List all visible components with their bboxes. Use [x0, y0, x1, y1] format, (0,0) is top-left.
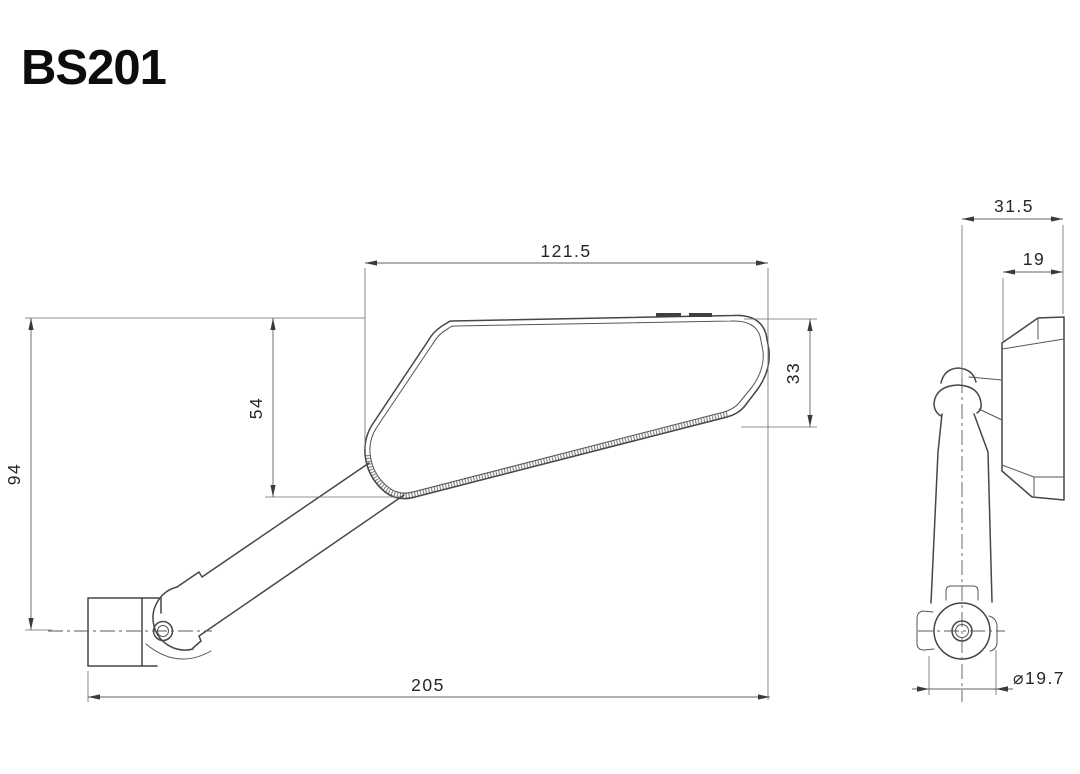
dim-label-glass-height: 54 [246, 397, 266, 419]
arm-lower-edge [193, 495, 404, 648]
dim-label-overall-depth: 31.5 [994, 196, 1034, 216]
dim-label-housing-depth: 19 [1023, 249, 1045, 269]
mirror-arm [146, 463, 404, 659]
ball-dome [941, 368, 976, 383]
technical-drawing: 121.5 94 54 33 205 [0, 0, 1080, 774]
dimension-housing-depth: 19 [1003, 249, 1063, 272]
clamp-left-tab [917, 611, 934, 650]
ball-joint [934, 368, 1002, 420]
dimension-overall-length: 205 [88, 675, 770, 697]
arm-pivot-housing-outer-arc [146, 644, 211, 659]
dim-label-mirror-right-height: 33 [783, 362, 803, 384]
dimension-overall-depth: 31.5 [962, 196, 1063, 219]
side-view: 121.5 94 54 33 205 [4, 241, 817, 702]
mirror-outline [365, 315, 769, 498]
dim-arrow-left [917, 686, 929, 691]
dimension-mirror-right-height: 33 [783, 319, 810, 427]
housing-inner-lines [1002, 318, 1064, 496]
dimension-glass-height: 54 [246, 318, 273, 497]
ball-collar [934, 385, 981, 416]
mirror-knurl-band [368, 414, 729, 495]
dim-label-clamp-diameter: ⌀19.7 [1013, 668, 1065, 688]
mirror-inner-rim [370, 321, 763, 493]
drawing-sheet: BS201 [0, 0, 1080, 774]
arm-pivot-housing-arc [153, 587, 193, 650]
bar-mount [48, 598, 212, 666]
dimension-clamp-diameter: ⌀19.7 [912, 668, 1065, 692]
mirror-housing-profile [1002, 317, 1064, 500]
dimension-mirror-width: 121.5 [365, 241, 768, 263]
dim-label-overall-length: 205 [411, 675, 445, 695]
dim-label-overall-height: 94 [4, 463, 24, 485]
mount-body [88, 598, 161, 666]
dim-arrow-right [996, 686, 1008, 691]
front-view: 31.5 19 ⌀19.7 [912, 196, 1065, 702]
bar-clamp [917, 586, 997, 659]
dim-label-mirror-width: 121.5 [540, 241, 591, 261]
dimension-overall-height: 94 [4, 318, 31, 630]
stem [931, 414, 992, 603]
